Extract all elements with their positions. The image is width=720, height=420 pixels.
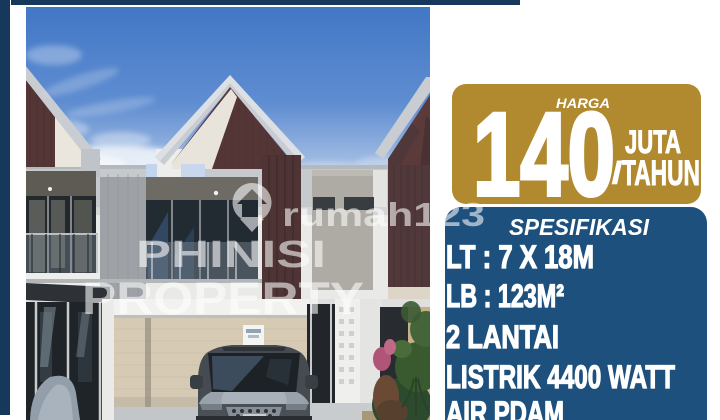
svg-text:/: /: [612, 155, 622, 190]
svg-text:LB : 123M²: LB : 123M²: [446, 278, 564, 314]
svg-text:LT : 7 X 18M: LT : 7 X 18M: [446, 239, 594, 275]
svg-text:PROPERTY: PROPERTY: [82, 273, 364, 324]
svg-text:SPESIFIKASI: SPESIFIKASI: [509, 214, 650, 240]
svg-text:PHINISI: PHINISI: [136, 234, 326, 276]
svg-text:2 LANTAI: 2 LANTAI: [446, 319, 559, 355]
svg-text:rumah123: rumah123: [282, 196, 485, 233]
svg-text:140: 140: [473, 89, 615, 221]
svg-text:TAHUN: TAHUN: [622, 154, 700, 193]
svg-text:AIR PDAM: AIR PDAM: [446, 395, 564, 420]
svg-text:LISTRIK 4400 WATT: LISTRIK 4400 WATT: [446, 359, 675, 395]
